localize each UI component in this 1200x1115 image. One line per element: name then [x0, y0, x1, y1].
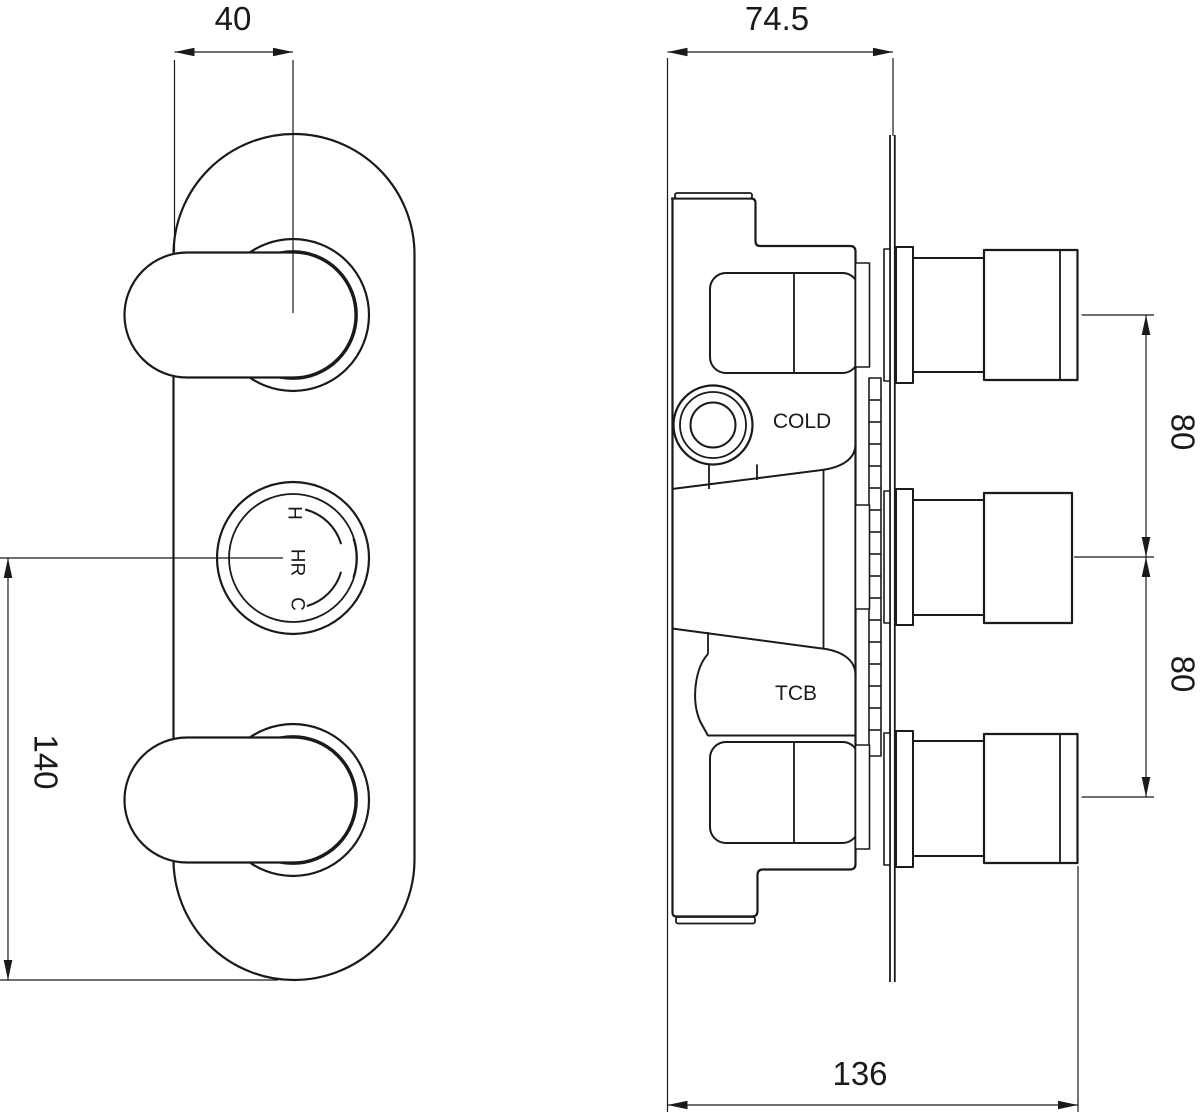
bottom-cartridge	[710, 742, 859, 843]
top-handle-lever	[125, 253, 356, 378]
dim-40-text: 40	[215, 0, 252, 37]
bottom-handle-lever	[125, 738, 356, 863]
top-flange	[896, 247, 913, 383]
dim-74-text: 74.5	[745, 0, 809, 37]
middle-knob-side	[984, 493, 1072, 623]
middle-stem	[856, 505, 870, 609]
dim-140-arrow-top	[4, 558, 13, 578]
body-bottom-foot-strip	[676, 917, 755, 924]
bottom-stem	[856, 745, 870, 849]
top-stem	[856, 263, 870, 367]
dim-136-text: 136	[832, 1055, 887, 1092]
tcb-port-label: TCB	[775, 682, 817, 705]
dim-140-arrow-bottom	[4, 960, 13, 980]
technical-drawing-page: H HR C 40 140	[0, 0, 1200, 1115]
cold-inlet-port	[674, 386, 758, 490]
top-knob-side	[984, 250, 1078, 380]
dim-40-arrow-left	[175, 48, 195, 57]
dimension-136: 136	[668, 866, 1079, 1112]
dial-scale-arc-lower	[307, 572, 341, 606]
thermostatic-cartridge-cone	[672, 444, 856, 675]
middle-handle-neck-side	[913, 500, 984, 615]
dial-letter-h: H	[284, 506, 305, 520]
valve-body-outline	[672, 199, 856, 917]
mounting-thread-ladder	[869, 378, 881, 756]
dial-letter-c: C	[287, 597, 308, 611]
dimension-80-group: 80 80	[1074, 315, 1200, 797]
technical-drawing: H HR C 40 140	[0, 0, 1200, 1115]
middle-washer	[884, 491, 890, 623]
dim-40-arrow-right	[273, 48, 293, 57]
bottom-handle-neck-side	[913, 741, 984, 856]
dim-140-text: 140	[28, 734, 65, 789]
top-handle	[125, 239, 370, 391]
bottom-flange	[896, 731, 913, 867]
dim-80-top-text: 80	[1165, 414, 1200, 451]
bottom-knob-side	[984, 734, 1078, 863]
bottom-handle	[125, 724, 370, 876]
cold-port-label: COLD	[773, 410, 831, 433]
dial-index-marker	[353, 538, 356, 577]
front-view: H HR C 40 140	[0, 0, 415, 980]
bottom-washer	[884, 733, 890, 865]
middle-flange	[896, 489, 913, 625]
top-washer	[884, 249, 890, 381]
dial-scale-arc-upper	[305, 510, 341, 545]
dim-80-bottom-text: 80	[1165, 656, 1200, 693]
dial-letter-hr: HR	[287, 549, 308, 576]
body-top-cap-strip	[675, 193, 752, 199]
top-handle-neck-side	[913, 258, 984, 372]
top-cartridge	[710, 273, 859, 373]
side-view: COLD TCB 74.5	[668, 0, 1200, 1112]
